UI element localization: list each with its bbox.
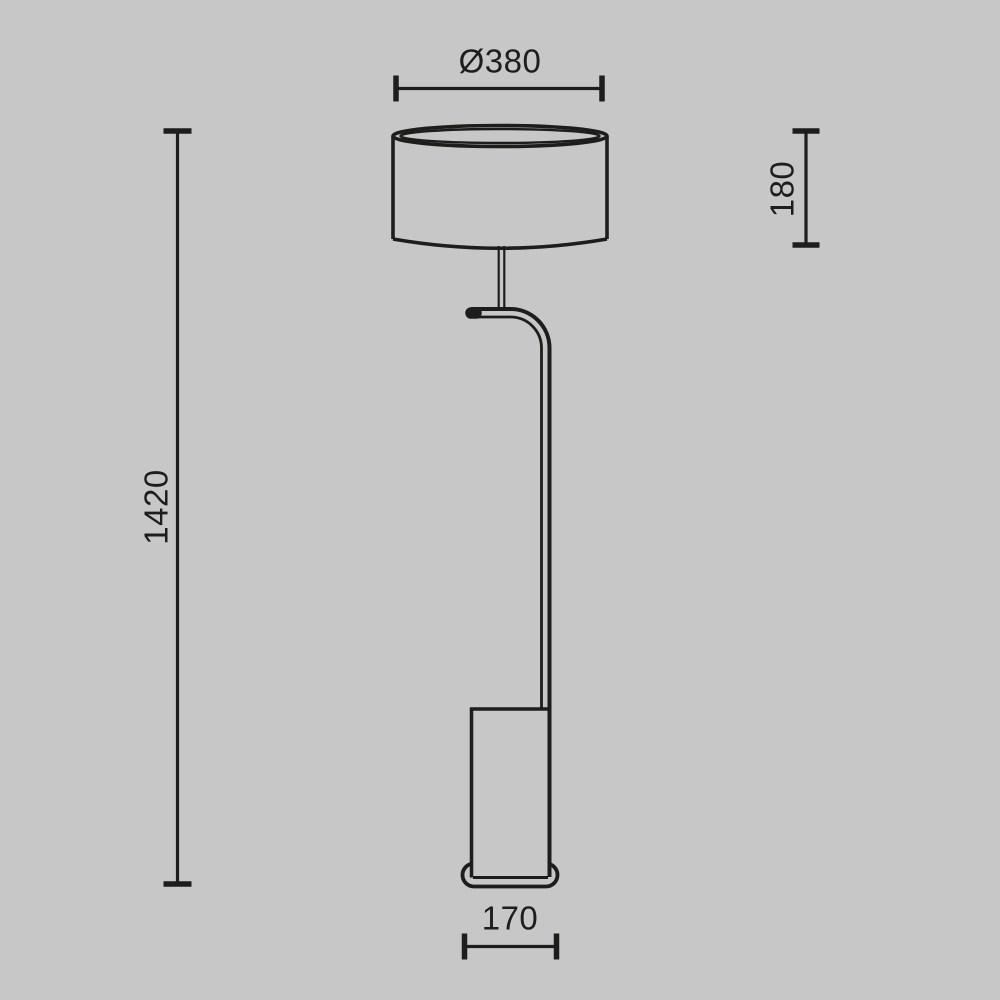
dimension-line-base-width <box>465 934 557 960</box>
dimension-label-shade-diameter: Ø380 <box>459 45 542 78</box>
dimension-label-shade-height: 180 <box>766 161 799 218</box>
technical-drawing-canvas: Ø380 180 1420 170 <box>0 0 1000 1000</box>
lamp-base-cylinder <box>470 709 552 878</box>
lampshade <box>393 126 607 249</box>
lamp-stem <box>499 246 505 309</box>
dimension-label-base-width: 170 <box>482 902 539 935</box>
dimension-label-total-height: 1420 <box>140 469 173 544</box>
